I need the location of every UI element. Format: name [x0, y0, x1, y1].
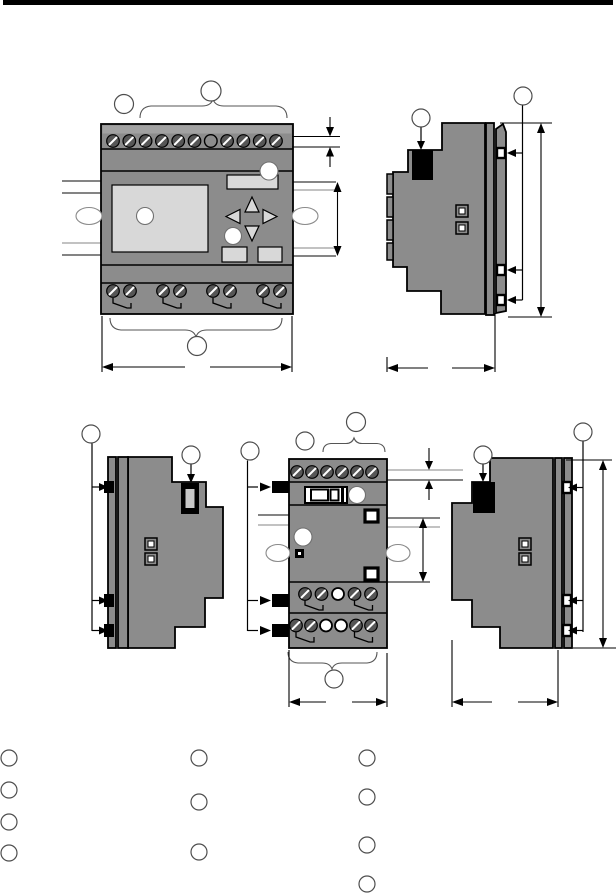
lcd-display: [112, 185, 208, 252]
brace-bottom: [288, 652, 377, 669]
callout: [188, 337, 207, 356]
callout: [412, 109, 430, 150]
rail-clip: [497, 265, 505, 275]
callout: [201, 81, 221, 101]
dimension-panel-height: [334, 182, 342, 256]
callout: [182, 446, 200, 483]
brace-top-terminals: [140, 99, 287, 118]
din-rail-strip: [555, 458, 562, 648]
base-unit-front: [101, 124, 293, 314]
callout: [347, 413, 366, 432]
brace-bottom-terminals: [110, 318, 282, 337]
legend-bullet: [1, 782, 17, 798]
expansion-connector: [412, 150, 433, 180]
legend-bullet: [1, 845, 17, 861]
expansion-profile-right: [452, 458, 572, 648]
keypad-callout-marker: [225, 228, 242, 245]
terminal-screw: [139, 135, 152, 148]
dimension-depth: [387, 313, 495, 372]
panel-callout-marker: [294, 528, 312, 546]
page: [0, 0, 616, 895]
bus-connector-tab: [272, 624, 289, 637]
function-button-right: [258, 247, 282, 262]
status-led: [295, 549, 304, 558]
terminal-screw: [270, 135, 283, 148]
terminal-screw: [123, 135, 136, 148]
brace-top-terminals: [323, 438, 385, 452]
rail-clip: [497, 295, 505, 305]
legend-bullet: [359, 750, 375, 766]
terminal-plain: [205, 135, 218, 148]
dimension-terminal-height: [292, 117, 340, 167]
din-rail-strip: [486, 123, 494, 315]
connection-slider: [305, 487, 347, 503]
mount-slot-left: [266, 545, 290, 562]
din-rail-flange: [118, 457, 128, 648]
display-callout-marker: [137, 208, 154, 225]
legend-bullet: [191, 844, 207, 860]
callout: [325, 670, 343, 688]
expansion-connector: [473, 482, 495, 513]
terminal-screw: [188, 135, 201, 148]
legend-bullet: [191, 750, 207, 766]
terminal-screw: [237, 135, 250, 148]
figure-base-side-view: [387, 87, 552, 372]
legend-bullet: [1, 750, 17, 766]
top-edge-band: [103, 126, 292, 134]
legend: [1, 750, 375, 892]
callout: [296, 432, 314, 450]
dimension-depth: [452, 640, 558, 707]
figure-expansion-left-side-view: [82, 425, 223, 648]
function-button-left: [222, 247, 247, 262]
dimension-drawing: [0, 0, 616, 895]
mount-slot-right: [292, 208, 318, 225]
legend-bullet: [359, 837, 375, 853]
dimension-terminal-height: [425, 448, 433, 500]
legend-column-1: [1, 750, 17, 861]
dimension-panel-height: [419, 518, 427, 582]
legend-column-3: [359, 750, 375, 892]
legend-bullet: [359, 789, 375, 805]
input-terminal-row: [107, 135, 283, 148]
callout: [115, 95, 134, 114]
mount-slot-left: [76, 208, 102, 225]
figure-expansion-front-view: [241, 413, 463, 708]
legend-column-2: [191, 750, 207, 860]
bus-connector-tab: [272, 594, 289, 607]
mount-slot-right: [386, 545, 410, 562]
figure-expansion-right-side-view: [452, 423, 616, 707]
rail-clip: [497, 148, 505, 158]
terminal-screw: [156, 135, 169, 148]
terminal-screw: [221, 135, 234, 148]
legend-bullet: [191, 794, 207, 810]
terminal-screw: [172, 135, 185, 148]
callout: [507, 87, 532, 304]
terminal-screw: [253, 135, 266, 148]
fixing-hole: [365, 510, 378, 522]
expansion-profile-left: [104, 457, 223, 648]
legend-bullet: [359, 876, 375, 892]
slider-callout-marker: [349, 487, 366, 504]
dimension-height: [500, 123, 552, 317]
legend-bullet: [1, 814, 17, 830]
callout: [241, 442, 271, 635]
bus-connector-tab: [272, 481, 289, 493]
page-top-rule: [3, 0, 613, 5]
terminal-screw: [107, 135, 120, 148]
fixing-hole: [365, 568, 378, 580]
figure-base-front-view: [62, 81, 342, 372]
base-unit-profile: [387, 123, 506, 315]
button-callout-marker: [260, 162, 278, 180]
